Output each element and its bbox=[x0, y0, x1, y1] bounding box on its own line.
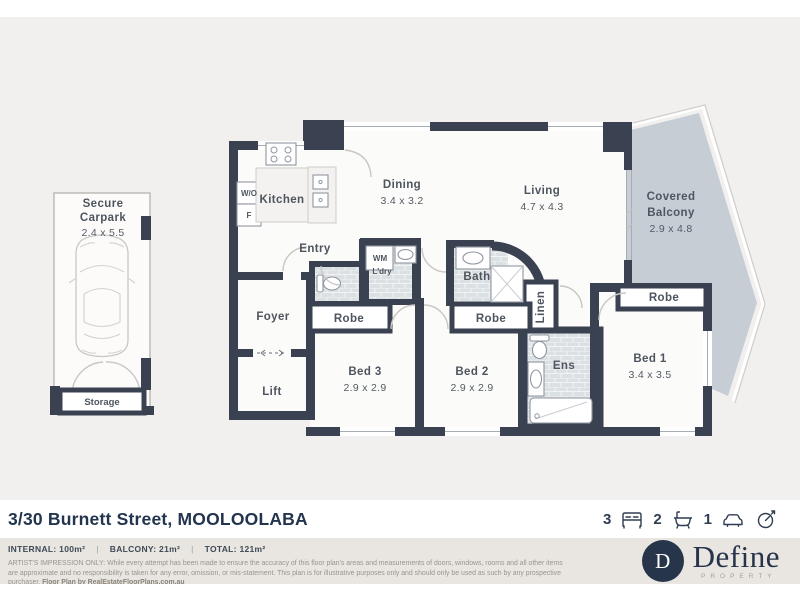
bed3-label: Bed 3 bbox=[348, 366, 381, 378]
floor-plan-svg: Storage Secure Carpark 2.4 x 5.5 Covered… bbox=[0, 0, 800, 505]
bed3-dims: 2.9 x 2.9 bbox=[344, 382, 387, 394]
separator: | bbox=[96, 544, 99, 554]
address-suburb: MOOLOOLABA bbox=[178, 509, 308, 529]
dining-label: Dining bbox=[383, 179, 421, 191]
balcony-dims: 2.9 x 4.8 bbox=[650, 223, 693, 235]
bed2-label: Bed 2 bbox=[455, 366, 488, 378]
carpark-dims: 2.4 x 5.5 bbox=[82, 227, 125, 239]
balcony-label-2: Balcony bbox=[647, 207, 695, 219]
robe-bed2-label: Robe bbox=[476, 313, 506, 325]
lift-label: Lift bbox=[262, 386, 281, 398]
dining-dims: 3.4 x 3.2 bbox=[381, 195, 424, 207]
logo-text: Define PROPERTY bbox=[693, 541, 780, 581]
top-strip bbox=[0, 0, 800, 17]
info-band: INTERNAL: 100m²|BALCONY: 21m²|TOTAL: 121… bbox=[0, 538, 800, 584]
address: 3/30 Burnett Street, MOOLOOLABA bbox=[8, 509, 308, 530]
floor-plan: Storage Secure Carpark 2.4 x 5.5 Covered… bbox=[0, 0, 800, 505]
kitchen-label: Kitchen bbox=[260, 194, 305, 206]
storage-label: Storage bbox=[84, 397, 119, 408]
room-carpark: Storage Secure Carpark 2.4 x 5.5 bbox=[50, 193, 154, 415]
logo-name: Define bbox=[693, 541, 780, 572]
foyer-label: Foyer bbox=[256, 311, 289, 323]
bed1-label: Bed 1 bbox=[633, 353, 667, 365]
compass-icon bbox=[754, 508, 778, 530]
ensuite-label: Ens bbox=[553, 360, 575, 372]
car-icon bbox=[721, 509, 745, 529]
separator: | bbox=[191, 544, 194, 554]
cooktop-icon bbox=[266, 143, 296, 165]
bath-label: Bath bbox=[463, 271, 490, 283]
area-balcony: BALCONY: 21m² bbox=[110, 544, 180, 554]
bed2-dims: 2.9 x 2.9 bbox=[451, 382, 494, 394]
living-dims: 4.7 x 4.3 bbox=[521, 201, 564, 213]
living-label: Living bbox=[524, 185, 560, 197]
carpark-label-1: Secure bbox=[83, 198, 124, 210]
bath-count: 2 bbox=[653, 511, 661, 528]
address-bar: 3/30 Burnett Street, MOOLOOLABA 3 2 1 bbox=[0, 500, 800, 538]
car-count: 1 bbox=[704, 511, 712, 528]
property-stats: 3 2 1 bbox=[603, 508, 778, 530]
laundry-label: L'dry bbox=[372, 267, 392, 276]
fridge-label: F bbox=[247, 211, 252, 220]
logo-initial: D bbox=[642, 540, 684, 582]
robe-bed3-label: Robe bbox=[334, 313, 364, 325]
laundry-wm-label: WM bbox=[373, 254, 388, 263]
ensuite-toilet-icon bbox=[530, 335, 549, 341]
area-internal: INTERNAL: 100m² bbox=[8, 544, 85, 554]
address-street: 3/30 Burnett Street, bbox=[8, 509, 178, 529]
bed-icon bbox=[620, 509, 644, 529]
logo-tagline: PROPERTY bbox=[701, 574, 777, 581]
entry-label: Entry bbox=[299, 243, 331, 255]
agency-logo: D Define PROPERTY bbox=[642, 540, 780, 582]
bed1-dims: 3.4 x 3.5 bbox=[629, 369, 672, 381]
wall-oven-label: W/O bbox=[241, 189, 257, 198]
bed-count: 3 bbox=[603, 511, 611, 528]
toilet-icon bbox=[317, 275, 323, 292]
linen-label: Linen bbox=[535, 291, 547, 324]
bottom-strip bbox=[0, 584, 800, 600]
car-icon bbox=[69, 235, 135, 357]
floorplan-page: Storage Secure Carpark 2.4 x 5.5 Covered… bbox=[0, 0, 800, 600]
carpark-label-2: Carpark bbox=[80, 212, 126, 224]
area-total: TOTAL: 121m² bbox=[205, 544, 266, 554]
balcony-label-1: Covered bbox=[647, 191, 696, 203]
bath-icon bbox=[671, 509, 695, 529]
robe-bed1-label: Robe bbox=[649, 292, 679, 304]
